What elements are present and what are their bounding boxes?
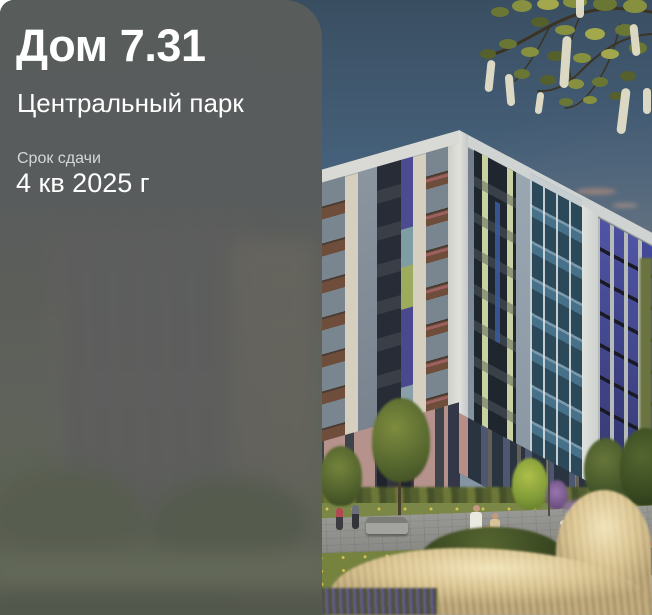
cyclist	[336, 508, 343, 530]
cloud	[612, 203, 638, 208]
blue-accent-strip	[495, 201, 500, 344]
parked-car	[366, 517, 408, 534]
deadline-label: Срок сдачи	[17, 150, 101, 168]
deadline-value: 4 кв 2025 г	[16, 168, 150, 199]
recessed-window-stack	[474, 150, 516, 451]
lavender-bed	[312, 588, 437, 615]
project-name: Центральный парк	[17, 88, 244, 119]
info-panel: Дом 7.31 Центральный парк Срок сдачи 4 к…	[0, 0, 322, 615]
base-pink-pilaster	[459, 413, 468, 478]
teal-volume	[530, 173, 582, 481]
lime-accent-strip	[507, 168, 513, 450]
background-tree-sliver	[640, 258, 652, 448]
tree-canopy	[320, 446, 362, 506]
white-flower-racemes	[484, 0, 651, 134]
tree-canopy-bright	[512, 458, 548, 510]
tree-branch-overlay	[430, 0, 652, 156]
house-title: Дом 7.31	[16, 20, 206, 72]
lime-accent-strip	[482, 154, 488, 436]
tree-canopy	[372, 398, 430, 482]
cyclist	[352, 505, 359, 529]
project-card[interactable]: Дом 7.31 Центральный парк Срок сдачи 4 к…	[0, 0, 652, 615]
cloud	[576, 188, 616, 195]
lamp-post	[548, 460, 550, 516]
